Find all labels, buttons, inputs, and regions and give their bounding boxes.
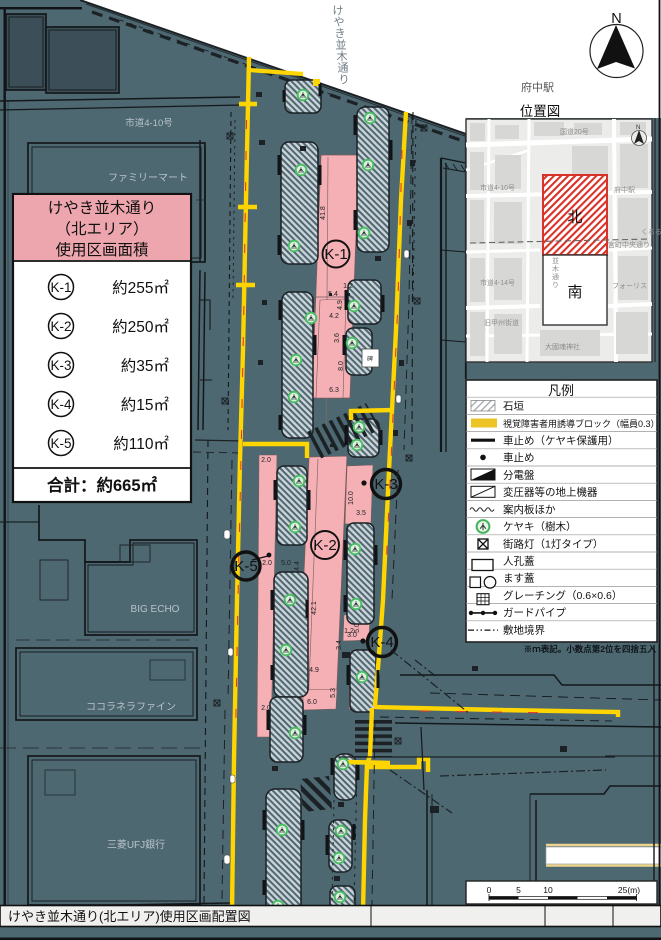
svg-text:N: N [611, 11, 621, 27]
svg-text:三菱UFJ銀行: 三菱UFJ銀行 [107, 838, 165, 851]
svg-text:ココラネラファイン: ココラネラファイン [86, 701, 176, 713]
svg-text:5.0: 5.0 [354, 623, 361, 633]
svg-text:視覚障害者用誘導ブロック（幅員0.3）: 視覚障害者用誘導ブロック（幅員0.3） [503, 418, 660, 429]
svg-text:ケヤキ（樹木）: ケヤキ（樹木） [503, 520, 577, 533]
svg-text:K-3: K-3 [374, 476, 397, 493]
svg-text:府中駅: 府中駅 [521, 80, 554, 94]
svg-text:5: 5 [516, 885, 521, 895]
svg-text:1.2: 1.2 [344, 628, 354, 635]
svg-text:街路灯（1灯タイプ）: 街路灯（1灯タイプ） [503, 537, 603, 550]
svg-text:5.3: 5.3 [330, 688, 337, 698]
svg-text:10.0: 10.0 [348, 491, 355, 505]
svg-text:フォーリス: フォーリス [612, 282, 647, 290]
svg-text:3.6: 3.6 [334, 333, 341, 343]
svg-text:分電盤: 分電盤 [503, 468, 535, 481]
svg-text:ファミリーマート: ファミリーマート [108, 173, 188, 184]
svg-text:K-4: K-4 [370, 634, 393, 651]
svg-text:市道4-14号: 市道4-14号 [480, 278, 515, 287]
svg-text:K-1: K-1 [324, 246, 347, 263]
svg-text:K-3: K-3 [50, 358, 71, 373]
svg-text:位置図: 位置図 [520, 104, 561, 119]
svg-text:1.2: 1.2 [343, 283, 353, 290]
svg-text:大國魂神社: 大國魂神社 [545, 342, 580, 351]
svg-text:4.2: 4.2 [329, 313, 339, 320]
svg-text:くるる: くるる [641, 228, 661, 236]
svg-text:K-1: K-1 [50, 280, 71, 295]
svg-text:6.3: 6.3 [329, 387, 339, 394]
svg-text:旧甲州街道: 旧甲州街道 [484, 318, 519, 327]
svg-text:宮町中央通り: 宮町中央通り [608, 240, 650, 249]
svg-text:K-5: K-5 [234, 558, 257, 575]
svg-text:42.1: 42.1 [311, 601, 318, 615]
svg-text:敷地境界: 敷地境界 [503, 623, 545, 636]
svg-text:5.0: 5.0 [281, 560, 291, 567]
svg-text:グレーチング（0.6×0.6）: グレーチング（0.6×0.6） [503, 589, 622, 602]
svg-text:約110㎡: 約110㎡ [113, 435, 169, 453]
svg-text:合計：約665㎡: 合計：約665㎡ [47, 475, 158, 495]
svg-text:3.5: 3.5 [356, 510, 366, 517]
svg-text:BIG ECHO: BIG ECHO [131, 604, 180, 615]
svg-text:碑: 碑 [367, 355, 373, 363]
svg-text:凡例: 凡例 [548, 383, 574, 398]
svg-text:市道4-10号: 市道4-10号 [480, 183, 515, 192]
svg-text:北: 北 [567, 209, 582, 226]
svg-text:6.0: 6.0 [307, 699, 317, 706]
svg-text:10: 10 [543, 885, 553, 895]
svg-text:2.0: 2.0 [261, 457, 271, 464]
svg-text:K-5: K-5 [50, 436, 71, 451]
svg-text:変圧器等の地上機器: 変圧器等の地上機器 [503, 486, 598, 499]
svg-text:K-2: K-2 [313, 537, 336, 554]
svg-text:0: 0 [487, 885, 492, 895]
svg-text:けやき並木通り: けやき並木通り [48, 199, 157, 217]
svg-text:2.0: 2.0 [262, 560, 272, 567]
svg-text:ガードパイプ: ガードパイプ [503, 607, 566, 619]
svg-text:石垣: 石垣 [503, 401, 524, 413]
svg-text:人孔蓋: 人孔蓋 [503, 555, 535, 568]
svg-text:4.9: 4.9 [337, 300, 344, 310]
svg-text:（北エリア）: （北エリア） [55, 220, 148, 238]
svg-text:8.0: 8.0 [338, 361, 345, 371]
svg-text:K-4: K-4 [50, 397, 72, 412]
svg-text:25(m): 25(m) [618, 885, 640, 895]
svg-text:約250㎡: 約250㎡ [112, 318, 169, 336]
svg-text:府中駅: 府中駅 [614, 185, 635, 194]
svg-text:国道20号: 国道20号 [560, 127, 589, 136]
svg-text:※ｍ表記。小数点第2位を四捨五入: ※ｍ表記。小数点第2位を四捨五入 [524, 644, 657, 654]
svg-text:K-2: K-2 [50, 319, 71, 334]
svg-text:約15㎡: 約15㎡ [121, 396, 170, 414]
svg-text:ます蓋: ます蓋 [503, 573, 535, 585]
svg-text:並木通り: 並木通り [552, 256, 559, 289]
svg-text:41.8: 41.8 [320, 206, 327, 220]
svg-text:使用区画面積: 使用区画面積 [55, 241, 148, 259]
svg-text:約255㎡: 約255㎡ [112, 279, 169, 297]
svg-text:N: N [636, 125, 640, 131]
svg-text:けやき並木通り(北エリア)使用区画配置図: けやき並木通り(北エリア)使用区画配置図 [8, 909, 251, 924]
svg-text:案内板ほか: 案内板ほか [503, 503, 556, 516]
svg-text:3.4: 3.4 [336, 640, 343, 650]
svg-text:約35㎡: 約35㎡ [121, 357, 170, 375]
svg-text:車止め: 車止め [503, 451, 535, 464]
svg-text:市道4-10号: 市道4-10号 [125, 117, 173, 129]
svg-text:4.4: 4.4 [294, 561, 301, 571]
svg-text:車止め（ケヤキ保護用）: 車止め（ケヤキ保護用） [503, 434, 619, 447]
svg-text:南: 南 [567, 284, 582, 301]
svg-text:4.9: 4.9 [309, 667, 319, 674]
